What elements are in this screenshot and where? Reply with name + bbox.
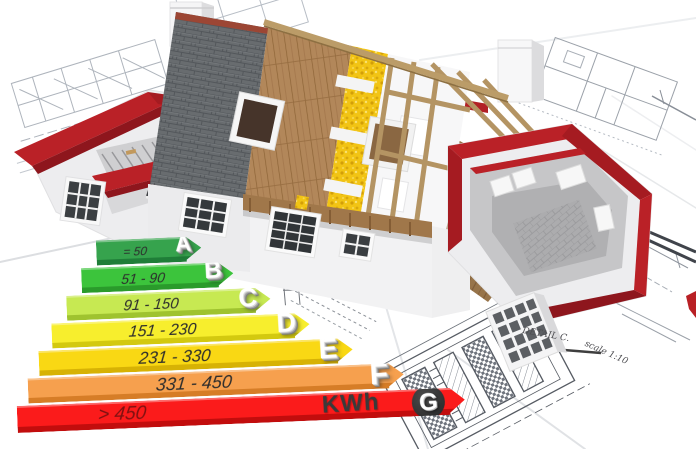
energy-band-b-range: 51 - 90	[120, 269, 165, 287]
energy-band-a: = 50 A	[96, 236, 202, 265]
energy-band-e-range: 231 - 330	[138, 345, 212, 368]
kwh-unit-label: KWh	[321, 389, 380, 420]
energy-band-c-range: 91 - 150	[123, 294, 180, 313]
skylight-window	[229, 92, 284, 150]
energy-band-d-range: 151 - 230	[128, 320, 197, 341]
energy-band-a-range: = 50	[123, 243, 148, 258]
energy-band-g-range: > 450	[97, 402, 147, 426]
energy-band-f-range: 331 - 450	[155, 371, 233, 395]
energy-band-a-letter: A	[175, 232, 192, 255]
energy-band-g-letter: G	[411, 385, 446, 420]
energy-band-b: 51 - 90 B	[81, 262, 234, 293]
energy-band-c-letter: C	[238, 284, 258, 311]
right-chimney	[498, 40, 544, 102]
scene: = 50 A 51 - 90 B 91 - 150 C 151 - 230 D …	[0, 0, 696, 449]
energy-band-b-letter: B	[203, 258, 222, 283]
energy-rating-chart: = 50 A 51 - 90 B 91 - 150 C 151 - 230 D …	[0, 214, 546, 449]
energy-band-d-letter: D	[275, 309, 296, 337]
energy-band-e-letter: E	[318, 334, 338, 363]
energy-band-f-letter: F	[368, 359, 388, 390]
